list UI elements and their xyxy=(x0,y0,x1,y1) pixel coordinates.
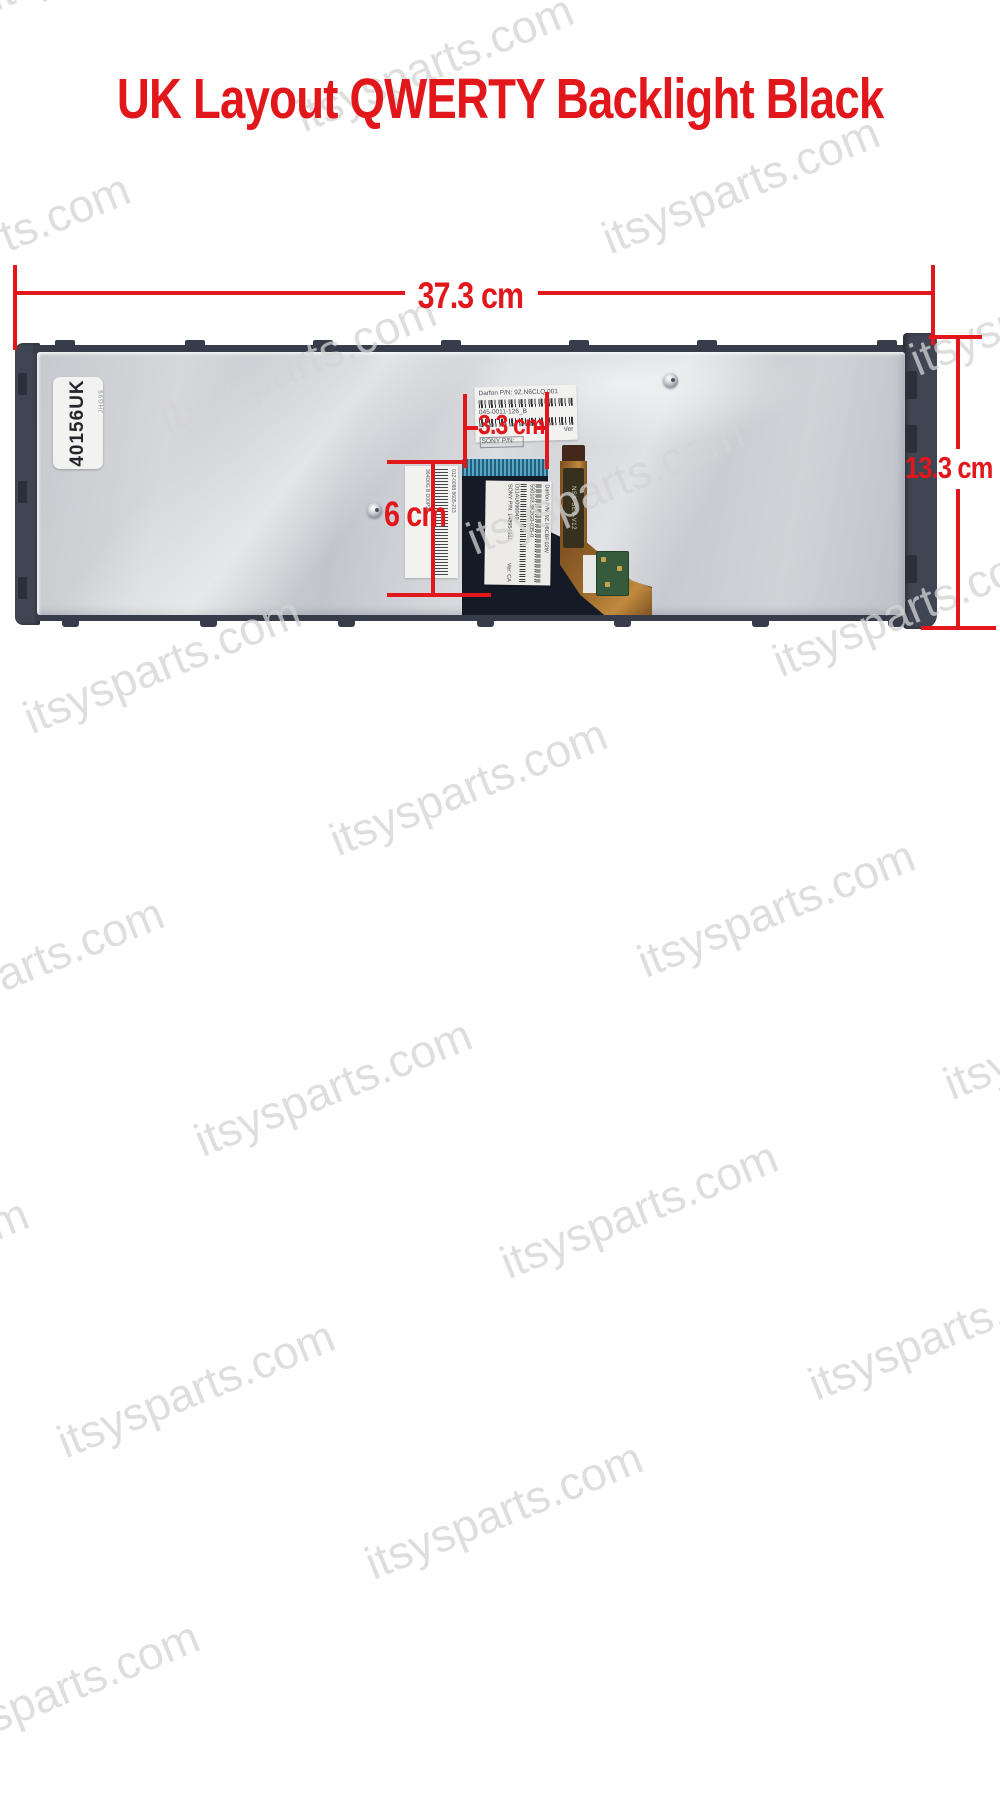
frame-notch xyxy=(18,373,27,395)
sticker-line: D11AU090049 xyxy=(512,484,520,582)
part-number-sticker: 40156UK xyxy=(53,377,103,469)
mount-tab xyxy=(888,619,905,627)
mount-tab xyxy=(441,340,461,346)
frame-notch xyxy=(18,481,27,503)
height-dim-tick-bottom xyxy=(921,626,996,630)
watermark-layer: itsysparts.comitsysparts.comitsysparts.c… xyxy=(0,0,1000,1802)
width-dim-label: 37.3 cm xyxy=(402,277,538,314)
keyboard-back-photo: 40156UK JHG99 Darfon P/N: 9Z.N6CLQ.001 0… xyxy=(15,333,937,633)
gap-dim-label: 3.3 cm xyxy=(478,411,559,439)
frame-notch xyxy=(905,555,917,583)
ribbon-dim-tick-top xyxy=(387,460,465,464)
frame-notch xyxy=(905,425,917,453)
ribbon-label-sticker: Darfon P/N: 9Z.N6CBF.02W 550103.3K2G0-03… xyxy=(484,481,551,586)
mount-tab xyxy=(200,619,217,627)
width-dim-tick-right xyxy=(931,265,935,345)
ribbon-connector-strip xyxy=(462,459,548,476)
width-dim-line-left xyxy=(15,291,405,295)
mount-tab xyxy=(697,340,717,346)
height-dim-label: 13.3 cm xyxy=(905,452,1000,483)
mount-tab xyxy=(313,340,333,346)
mount-tab xyxy=(185,340,205,346)
mount-tab xyxy=(62,619,79,627)
plate-stamp-text: JHG99 xyxy=(99,379,109,413)
mount-tab xyxy=(55,340,75,346)
screw xyxy=(367,503,382,518)
frame-notch xyxy=(905,371,917,399)
part-number-text: 40156UK xyxy=(67,379,89,466)
mount-tab xyxy=(752,619,769,627)
sticker-line: Ver: CA xyxy=(505,563,512,582)
flex-cable-label: NSK-SE0-V12 xyxy=(563,468,584,548)
backlight-pcb xyxy=(596,551,629,596)
mount-tab xyxy=(569,340,589,346)
width-dim-line-right xyxy=(538,291,933,295)
frame-notch xyxy=(18,577,27,599)
ribbon-dim-label: 6 cm xyxy=(384,497,460,532)
ribbon-dim-tick-bottom xyxy=(387,593,491,597)
sticker-line: SONY P/N: 148954911 xyxy=(505,484,513,540)
page-title: UK Layout QWERTY Backlight Black xyxy=(0,66,1000,132)
screw xyxy=(663,373,678,388)
mount-tab xyxy=(338,619,355,627)
height-dim-tick-top xyxy=(929,335,982,339)
page-title-text: UK Layout QWERTY Backlight Black xyxy=(117,66,884,132)
mount-tab xyxy=(877,340,897,346)
sticker-line: 550103.3K2G0-035-0 xyxy=(527,484,535,582)
mount-tab xyxy=(477,619,494,627)
width-dim-tick-left xyxy=(13,265,17,350)
sticker-line: Darfon P/N: 9Z.N6CBF.02W xyxy=(541,484,549,582)
gap-dim-line-left xyxy=(463,394,467,468)
height-dim-line-bottom xyxy=(956,489,960,629)
height-dim-line-top xyxy=(956,337,960,449)
gap-dim-dash-left xyxy=(465,426,478,430)
mount-tab xyxy=(614,619,631,627)
